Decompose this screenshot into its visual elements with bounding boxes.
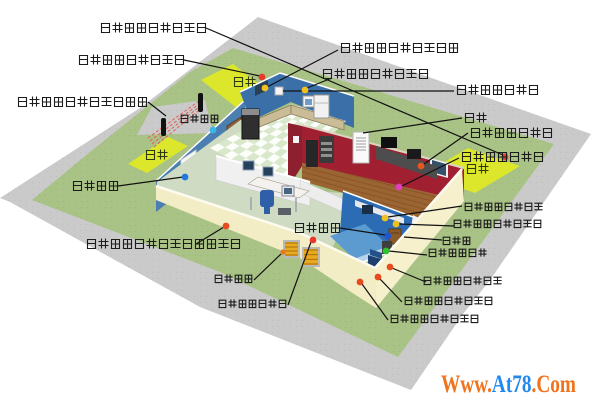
svg-text:Www.At78.Com: Www.At78.Com bbox=[441, 371, 576, 398]
